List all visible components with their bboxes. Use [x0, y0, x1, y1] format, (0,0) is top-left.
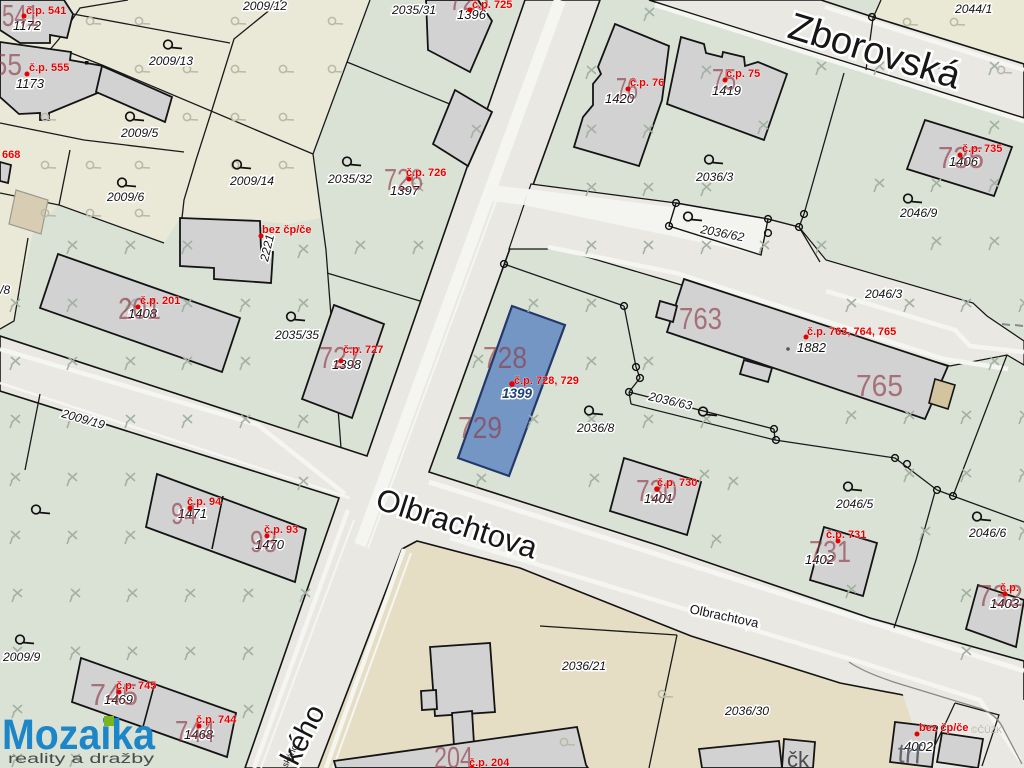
- svg-text:2009/5: 2009/5: [120, 126, 158, 140]
- svg-text:2035/35: 2035/35: [274, 328, 319, 342]
- svg-text:2036/30: 2036/30: [724, 704, 769, 718]
- svg-text:2046/9: 2046/9: [899, 206, 937, 220]
- svg-text:č.p. 76: č.p. 76: [630, 77, 664, 89]
- svg-text:č.p.: č.p.: [1000, 582, 1019, 594]
- svg-text:č.p. 731: č.p. 731: [826, 529, 866, 541]
- svg-text:765: 765: [856, 368, 903, 403]
- svg-text:©ČÚZK: ©ČÚZK: [971, 725, 1002, 735]
- svg-text:728: 728: [483, 340, 527, 375]
- svg-text:2044/1: 2044/1: [954, 2, 992, 16]
- svg-text:2035/31: 2035/31: [391, 3, 436, 17]
- svg-text:č.p. 93: č.p. 93: [264, 524, 298, 536]
- svg-text:trf: trf: [897, 738, 924, 768]
- svg-text:2009/13: 2009/13: [148, 54, 193, 68]
- svg-text:č.p. 727: č.p. 727: [343, 344, 383, 356]
- svg-text:č.p. 735: č.p. 735: [962, 143, 1002, 155]
- svg-text:č.p. 541: č.p. 541: [26, 5, 66, 17]
- svg-text:č.p. 744: č.p. 744: [196, 714, 237, 726]
- svg-text:bez čp/če: bez čp/če: [919, 722, 969, 734]
- svg-text:2035/32: 2035/32: [327, 172, 372, 186]
- svg-text:č.p. 94: č.p. 94: [187, 496, 222, 508]
- svg-text:555: 555: [0, 47, 22, 82]
- svg-text:668: 668: [2, 149, 20, 161]
- svg-text:2046/3: 2046/3: [864, 287, 902, 301]
- svg-text:č.p. 555: č.p. 555: [29, 62, 69, 74]
- svg-text:č.p. 725: č.p. 725: [472, 0, 512, 11]
- svg-text:č.p. 728, 729: č.p. 728, 729: [514, 375, 579, 387]
- svg-text:č.p. 726: č.p. 726: [406, 167, 446, 179]
- svg-text:763: 763: [679, 301, 722, 336]
- svg-text:729: 729: [458, 410, 502, 445]
- svg-text:2036/8: 2036/8: [576, 421, 614, 435]
- svg-text:2046/6: 2046/6: [968, 526, 1006, 540]
- svg-text:bez čp/če: bez čp/če: [262, 224, 312, 236]
- svg-text:č.p. 745: č.p. 745: [116, 680, 156, 692]
- svg-text:2009/9: 2009/9: [2, 650, 40, 664]
- svg-text:2036/3: 2036/3: [695, 170, 733, 184]
- svg-text:čk: čk: [787, 747, 810, 768]
- svg-text:2046/5: 2046/5: [835, 497, 873, 511]
- svg-text:2036/21: 2036/21: [561, 659, 606, 673]
- svg-text:204: 204: [434, 740, 473, 768]
- svg-text:1399: 1399: [502, 386, 533, 401]
- svg-text:č.p. 763, 764, 765: č.p. 763, 764, 765: [807, 326, 896, 338]
- svg-text:2009/14: 2009/14: [229, 174, 274, 188]
- svg-text:č.p. 730: č.p. 730: [657, 477, 697, 489]
- svg-text:reality a dražby: reality a dražby: [8, 751, 154, 766]
- svg-text:č.p. 201: č.p. 201: [140, 295, 180, 307]
- svg-text:/8: /8: [0, 283, 10, 297]
- svg-text:č.p. 204: č.p. 204: [469, 757, 510, 768]
- svg-text:2009/6: 2009/6: [106, 190, 144, 204]
- svg-text:2009/12: 2009/12: [242, 0, 287, 13]
- svg-text:č.p. 75: č.p. 75: [726, 68, 760, 80]
- svg-text:1882: 1882: [797, 340, 827, 355]
